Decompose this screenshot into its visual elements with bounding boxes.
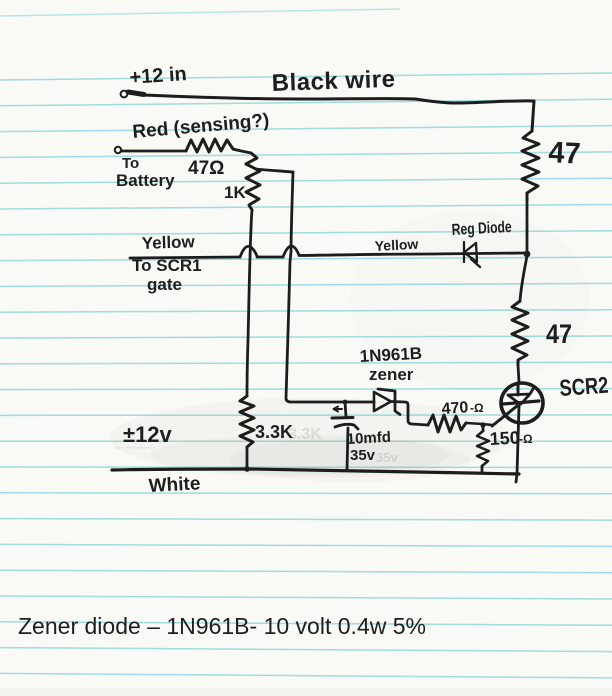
svg-text:Reg Diode: Reg Diode: [451, 219, 512, 239]
svg-text:To: To: [122, 155, 139, 172]
svg-text:10mfd: 10mfd: [346, 429, 391, 448]
svg-text:1K: 1K: [224, 183, 246, 202]
svg-text:zener: zener: [369, 365, 414, 384]
svg-text:150: 150: [489, 427, 520, 449]
svg-text:47: 47: [546, 319, 572, 349]
svg-text:Battery: Battery: [116, 171, 175, 190]
svg-text:470: 470: [441, 399, 469, 418]
svg-text:Black wire: Black wire: [271, 66, 396, 97]
svg-text:47: 47: [548, 136, 582, 171]
svg-text:35v: 35v: [350, 447, 376, 464]
svg-text:1N961B: 1N961B: [359, 344, 422, 366]
svg-text:3.3K: 3.3K: [288, 426, 322, 443]
svg-text:47Ω: 47Ω: [188, 158, 224, 179]
svg-text:-Ω: -Ω: [470, 401, 484, 415]
svg-text:±12v: ±12v: [123, 422, 173, 447]
svg-text:+12 in: +12 in: [129, 63, 188, 89]
svg-text:Yellow: Yellow: [141, 232, 195, 253]
svg-text:Yellow: Yellow: [374, 236, 418, 254]
svg-text:35v: 35v: [376, 450, 398, 465]
svg-text:gate: gate: [147, 275, 182, 294]
svg-text:Zener diode – 1N961B- 10 volt: Zener diode – 1N961B- 10 volt 0.4w 5%: [18, 613, 426, 639]
svg-text:White: White: [148, 473, 201, 497]
svg-text:SCR2: SCR2: [559, 372, 610, 401]
svg-text:-Ω: -Ω: [519, 432, 533, 446]
svg-text:To SCR1: To SCR1: [132, 256, 202, 275]
